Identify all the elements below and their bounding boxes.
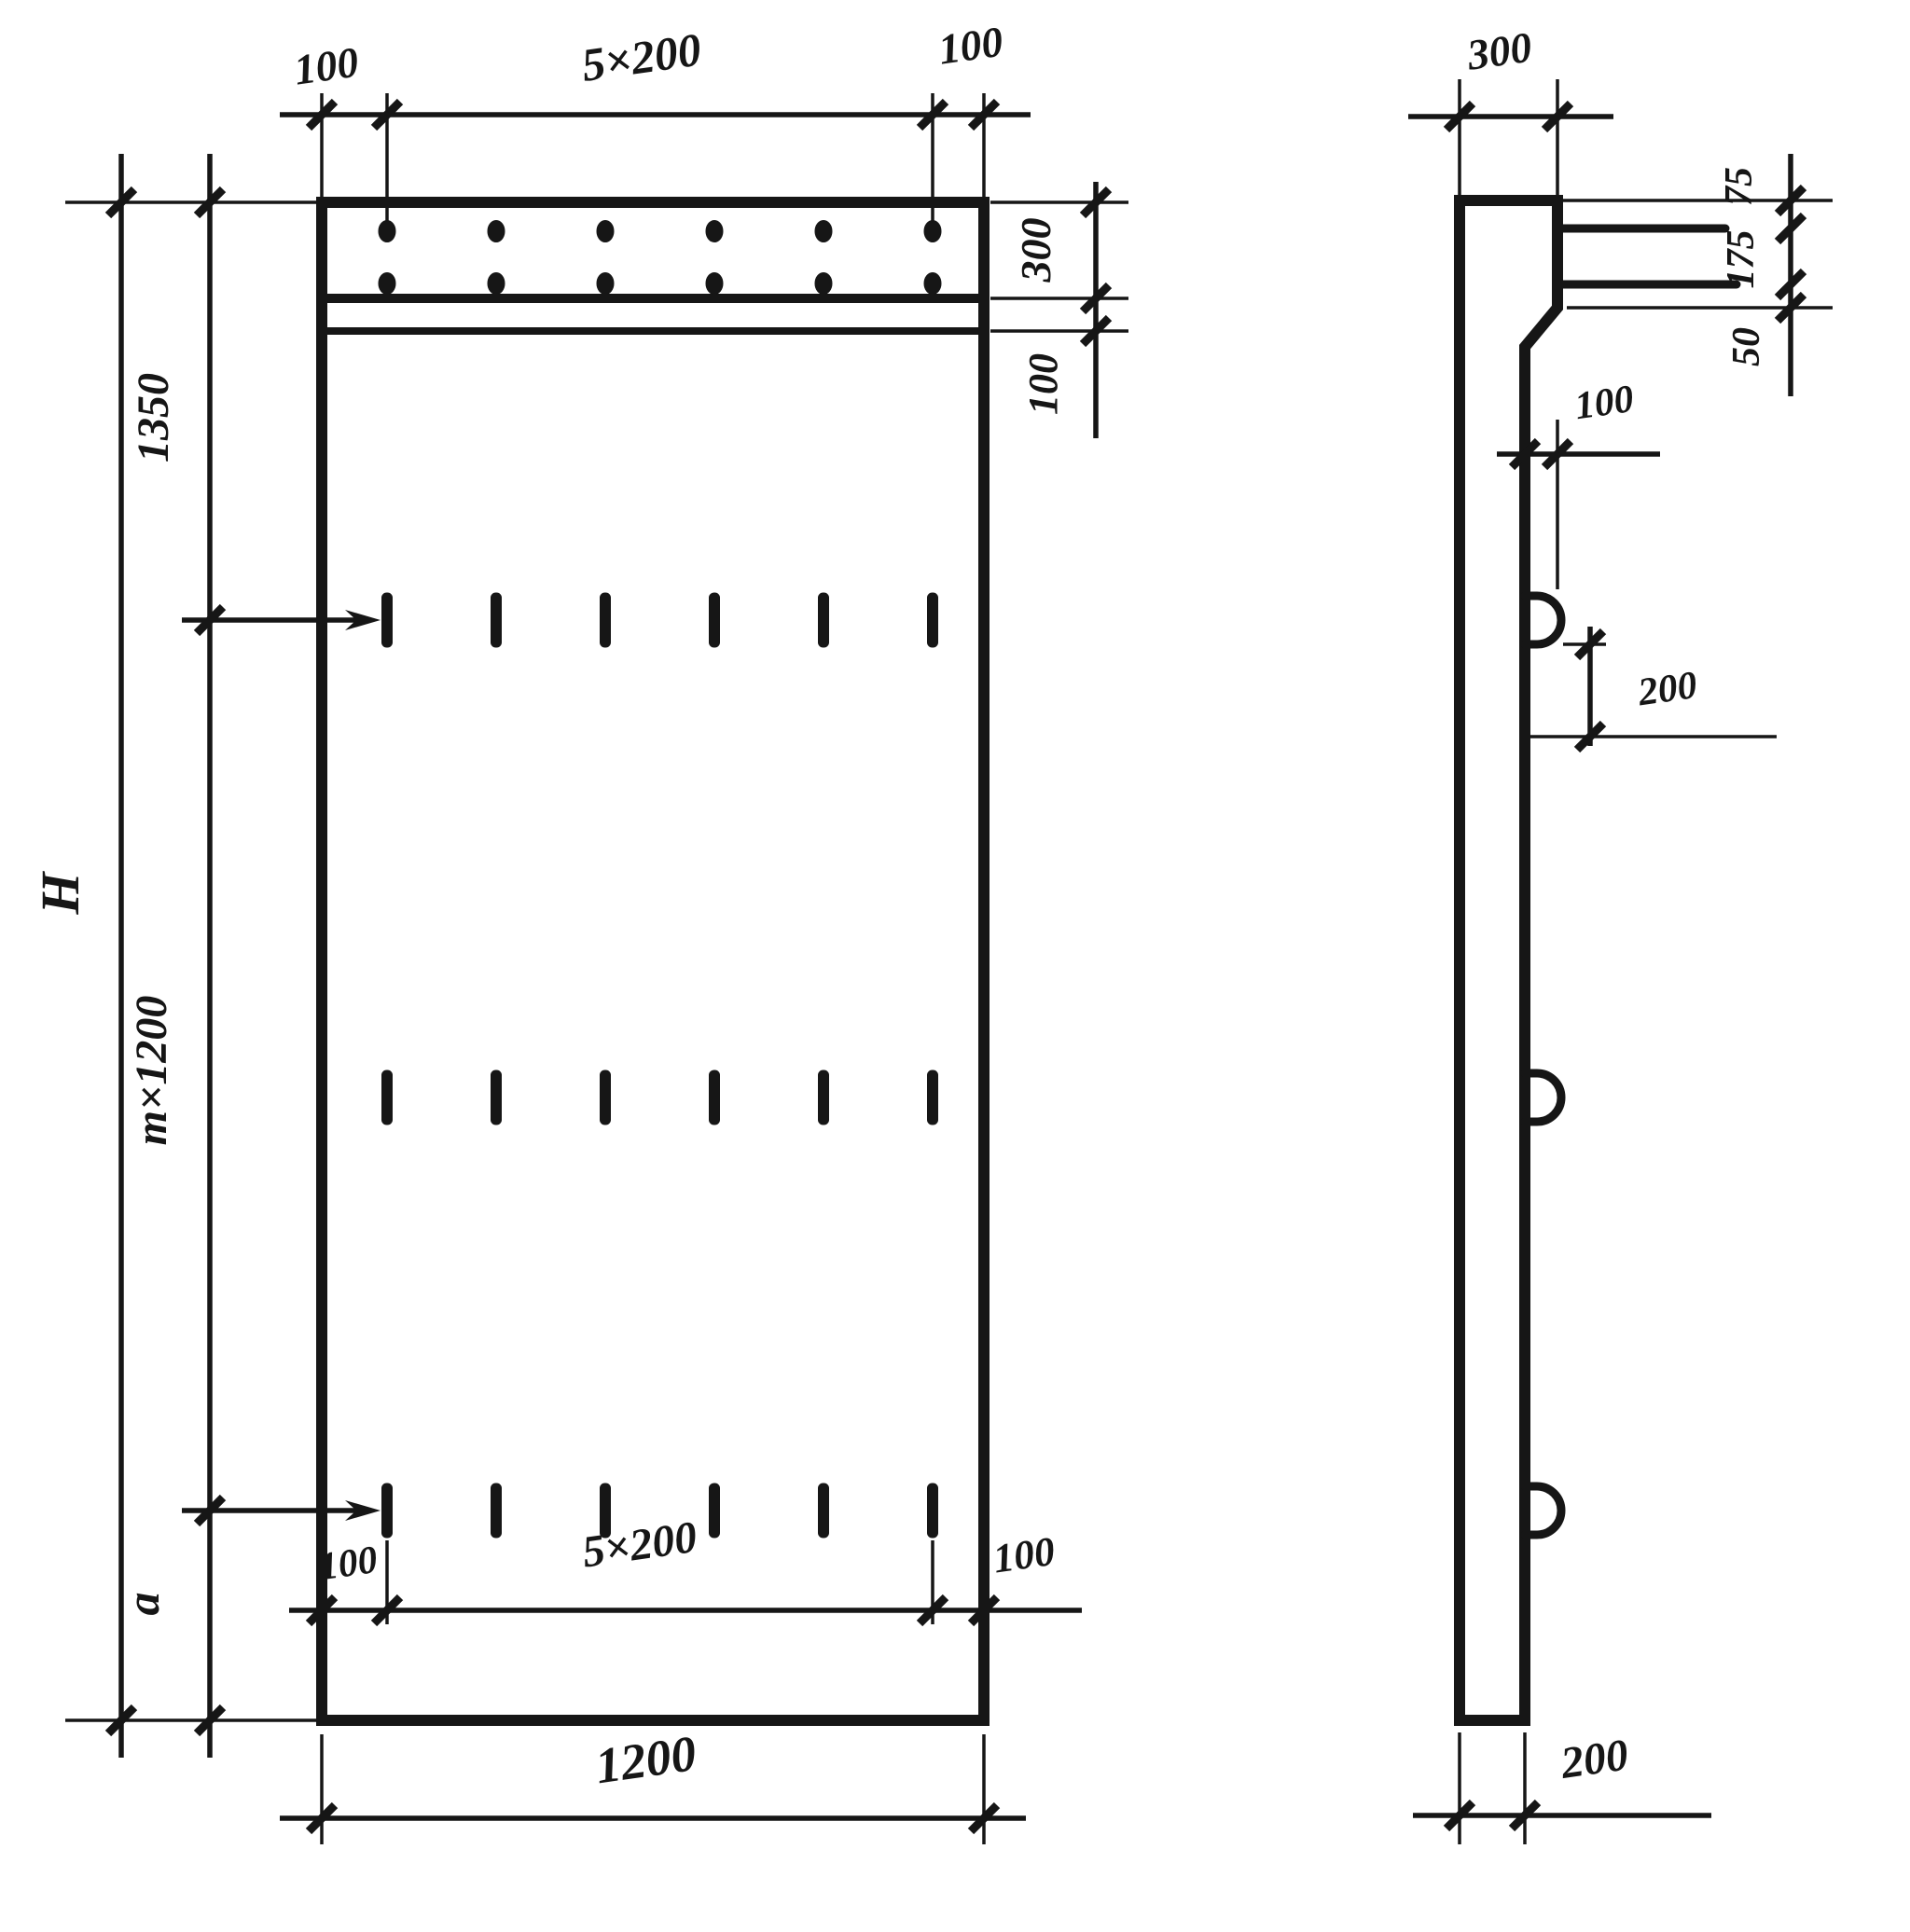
dim-label-top-thickness: 300: [1463, 23, 1534, 79]
front-dimension-labels: 100 5×200 100 300 100 H 1350 m×1200 a 10…: [30, 18, 1066, 1795]
rebar-dot: [924, 273, 941, 295]
dim-label-bar-offset-bottom: 50: [1725, 327, 1768, 366]
dim-label-bar-spacing: 175: [1720, 230, 1763, 289]
rebar-end-dots: [379, 221, 941, 295]
slot-dash: [928, 1070, 938, 1125]
side-dimension-lines: [1408, 79, 1833, 1844]
slot-dash: [819, 1070, 829, 1125]
slot-dash: [382, 1483, 393, 1538]
anchor-slots: [382, 593, 938, 1538]
front-dimension-lines: [65, 93, 1128, 1844]
dim-label-top-spacing: 5×200: [578, 22, 704, 90]
dim-label-height-bottom: a: [117, 1593, 169, 1616]
slot-dash: [491, 1483, 502, 1538]
dim-label-top-right-margin: 100: [935, 18, 1005, 74]
dim-label-height-middle: m×1200: [127, 996, 176, 1146]
dim-label-wall-thickness: 200: [1557, 1730, 1632, 1788]
dimension-arrows: [345, 610, 381, 1521]
slot-dash: [601, 1070, 611, 1125]
dim-label-bottom-spacing: 5×200: [579, 1512, 700, 1578]
slot-dash: [928, 1483, 938, 1538]
dim-label-bar-offset-top: 75: [1718, 167, 1761, 206]
dim-label-loop-projection: 100: [1572, 378, 1637, 428]
dim-label-loop-drop: 200: [1635, 664, 1700, 714]
dim-label-band-height: 300: [1012, 218, 1059, 283]
dim-label-total-height: H: [30, 871, 90, 916]
slot-dash: [382, 1070, 393, 1125]
rebar-dot: [379, 273, 395, 295]
dim-label-bottom-left-margin: 100: [316, 1539, 381, 1589]
rebar-dot: [706, 221, 723, 242]
panel-section-profile: [1460, 200, 1557, 1720]
dim-label-bottom-right-margin: 100: [990, 1528, 1058, 1582]
rebar-dot: [597, 221, 614, 242]
slot-dash: [710, 1070, 720, 1125]
slot-dash: [928, 593, 938, 647]
drawing-sheet: 100 5×200 100 300 100 H 1350 m×1200 a 10…: [0, 0, 1910, 1932]
panel-outline: [322, 202, 984, 1720]
panel-face: [322, 202, 984, 1720]
dim-label-top-left-margin: 100: [291, 38, 361, 94]
slot-dash: [382, 593, 393, 647]
front-view: 100 5×200 100 300 100 H 1350 m×1200 a 10…: [30, 18, 1128, 1844]
side-view: 300 75 175 50 100 200 200: [1408, 23, 1833, 1844]
rebar-dot: [597, 273, 614, 295]
rebar-dot: [706, 273, 723, 295]
slot-dash: [491, 593, 502, 647]
slot-dash: [710, 1483, 720, 1538]
profile-outline: [1460, 200, 1737, 1720]
dim-label-band-lip: 100: [1020, 353, 1066, 415]
dim-label-height-top: 1350: [129, 373, 178, 462]
dim-label-width: 1200: [592, 1725, 699, 1794]
slot-dash: [491, 1070, 502, 1125]
slot-dash: [601, 593, 611, 647]
rebar-dot: [488, 273, 505, 295]
rebar-dot: [815, 221, 832, 242]
panel-engineering-drawing: 100 5×200 100 300 100 H 1350 m×1200 a 10…: [0, 0, 1910, 1932]
rebar-dot: [815, 273, 832, 295]
slot-dash: [819, 593, 829, 647]
slot-dash: [710, 593, 720, 647]
slot-dash: [819, 1483, 829, 1538]
rebar-dot: [488, 221, 505, 242]
